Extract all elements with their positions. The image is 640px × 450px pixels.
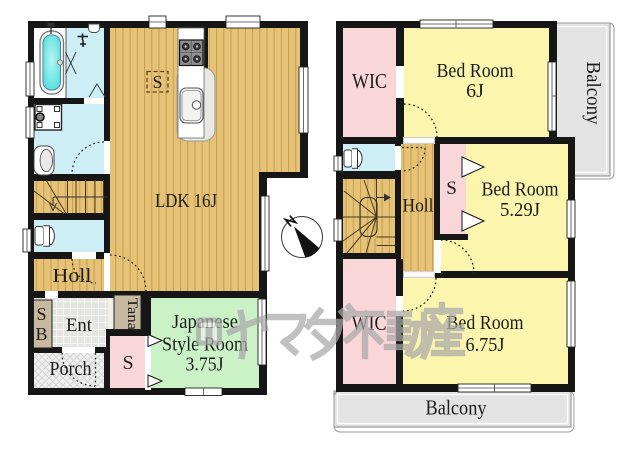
svg-text:6.75J: 6.75J [466,334,505,356]
svg-text:S: S [152,72,162,92]
svg-text:3.75J: 3.75J [186,354,224,376]
svg-text:Holl: Holl [53,265,92,287]
svg-text:Porch: Porch [50,358,92,380]
svg-text:6J: 6J [466,80,484,102]
svg-text:Balcony: Balcony [582,62,604,125]
svg-text:WIC: WIC [352,69,387,93]
svg-text:Balcony: Balcony [426,396,487,420]
svg-text:Bed Room: Bed Room [482,179,559,201]
svg-text:5.29J: 5.29J [500,199,540,221]
svg-text:Bed Room: Bed Room [437,60,514,82]
svg-text:S: S [36,304,46,324]
svg-text:Tana: Tana [124,298,140,330]
svg-text:S: S [446,178,457,199]
svg-text:LDK 16J: LDK 16J [155,190,217,212]
svg-text:B: B [35,324,47,344]
svg-text:S: S [122,352,133,374]
svg-text:Ent: Ent [66,315,93,336]
svg-text:Holl: Holl [403,197,434,217]
